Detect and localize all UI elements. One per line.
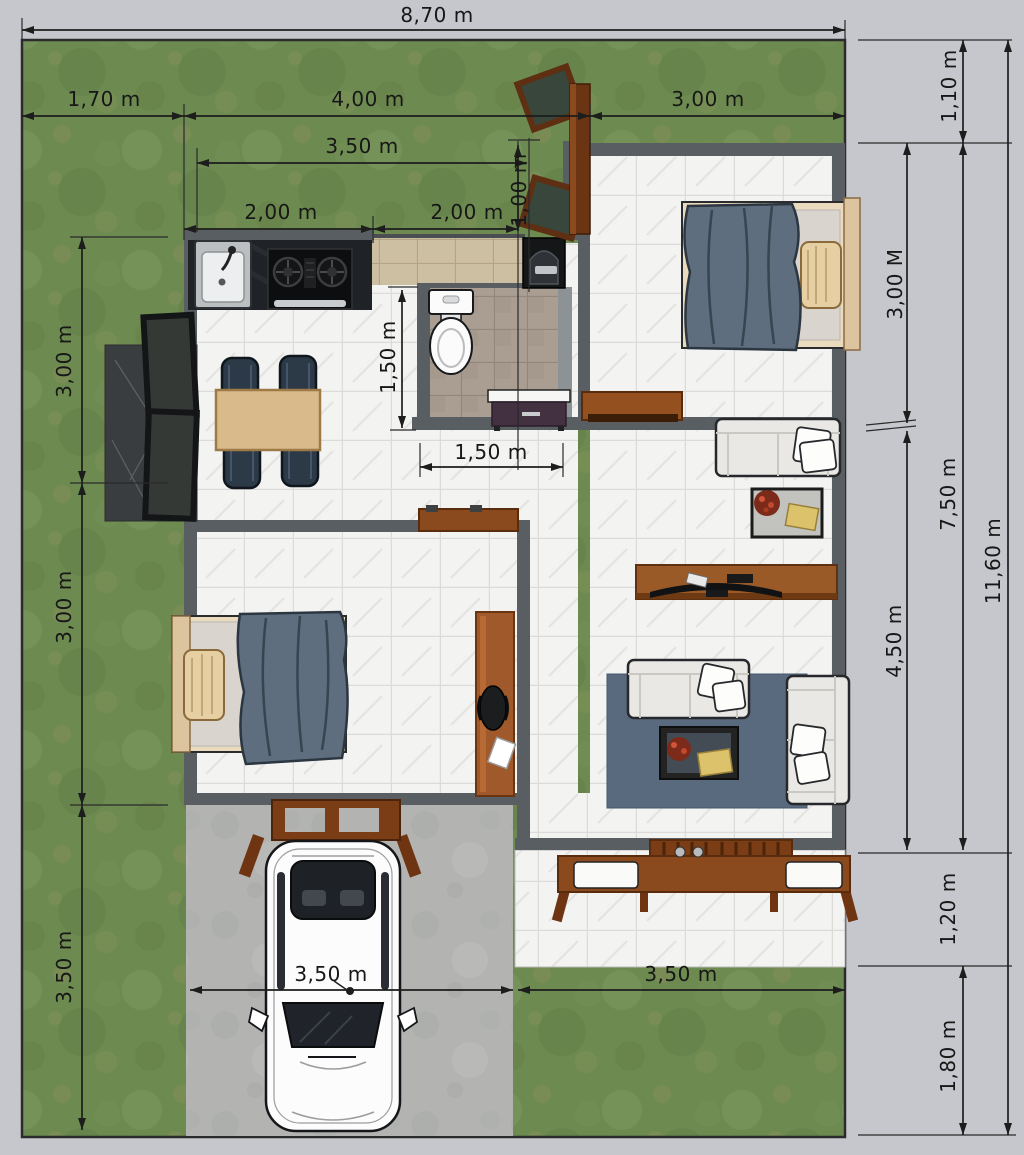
- side-table: [752, 489, 822, 537]
- dim-label-terrace-depth: 1,20 m: [936, 872, 960, 945]
- bathroom-vanity: [488, 390, 570, 431]
- dim-label-left-mid: 3,00 m: [52, 570, 76, 643]
- bed-2: [172, 612, 348, 764]
- porch-tile: [372, 238, 525, 285]
- dim-label-total-depth: 11,60 m: [981, 518, 1005, 605]
- dim-label-hall-width: 1,50 m: [454, 440, 527, 464]
- dim-label-porch-depth: 1,00 m: [507, 153, 531, 226]
- sofa-left: [628, 660, 749, 718]
- dining-table: [216, 390, 320, 450]
- kitchen-sink: [195, 241, 251, 308]
- toilet: [429, 290, 473, 374]
- sofa-top: [716, 419, 840, 476]
- dim-label-bedroom1-depth: 3,00 M: [883, 248, 907, 319]
- dim-label-kitchen-left: 2,00 m: [244, 200, 317, 224]
- floor-plan-screenshot: 8,70 m 1,70 m 4,00 m 3,00 m 3,50 m 2,00 …: [0, 0, 1024, 1155]
- sofa-right: [787, 676, 849, 804]
- dim-label-left-upper: 3,00 m: [52, 324, 76, 397]
- window-left: [105, 315, 197, 521]
- dim-label-living-depth: 4,50 m: [882, 604, 906, 677]
- car: [249, 841, 417, 1131]
- kitchen-stove: [268, 249, 352, 309]
- dim-label-top-left: 1,70 m: [67, 87, 140, 111]
- dim-label-bath-height: 1,50 m: [376, 320, 400, 393]
- dim-label-top-right: 3,00 m: [671, 87, 744, 111]
- dim-label-carport-width: 3,50 m: [294, 962, 367, 986]
- dim-label-total-width: 8,70 m: [400, 3, 473, 27]
- coffee-table: [660, 727, 738, 779]
- dim-label-top-mid: 4,00 m: [331, 87, 404, 111]
- dim-label-kitchen-right: 2,00 m: [430, 200, 503, 224]
- door-bedroom2: [419, 505, 518, 531]
- dim-label-yard-width: 3,50 m: [644, 962, 717, 986]
- dim-label-right-setback: 1,10 m: [937, 49, 961, 122]
- dim-label-house-depth: 7,50 m: [936, 457, 960, 530]
- dim-label-backyard-depth: 1,80 m: [936, 1019, 960, 1092]
- console-bedroom1: [582, 392, 682, 422]
- dim-label-kitchen-span: 3,50 m: [325, 134, 398, 158]
- bed-1: [682, 198, 860, 350]
- dim-label-left-lower: 3,50 m: [52, 930, 76, 1003]
